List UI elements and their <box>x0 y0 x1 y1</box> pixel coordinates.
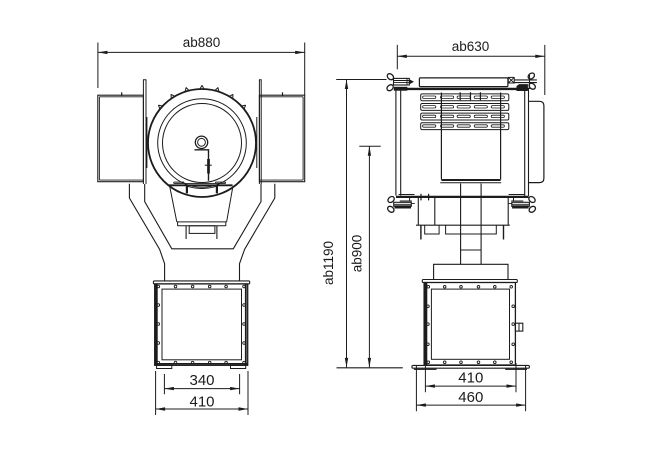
svg-text:340: 340 <box>189 372 214 389</box>
svg-text:ab630: ab630 <box>452 39 490 54</box>
svg-text:410: 410 <box>458 370 483 387</box>
svg-text:460: 460 <box>458 389 483 406</box>
svg-text:ab880: ab880 <box>183 35 221 50</box>
svg-text:ab900: ab900 <box>350 235 365 273</box>
svg-text:410: 410 <box>189 394 214 411</box>
svg-text:ab1190: ab1190 <box>321 241 336 285</box>
